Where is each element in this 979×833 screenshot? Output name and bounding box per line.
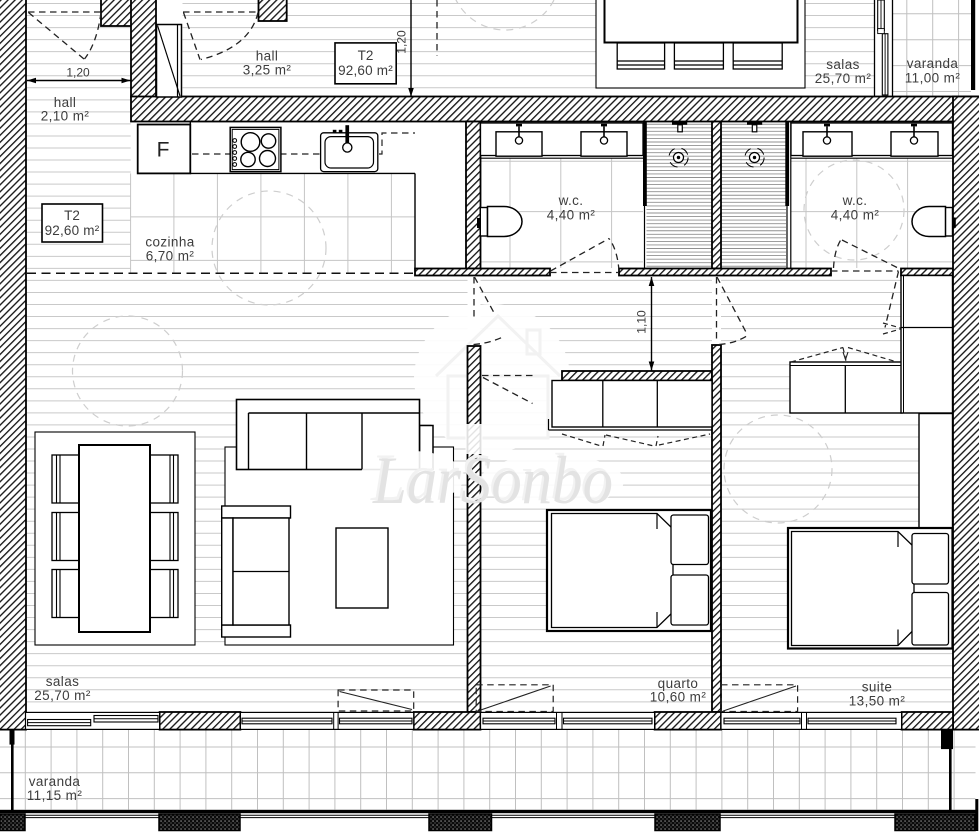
svg-text:varanda: varanda — [907, 56, 959, 71]
svg-text:10,60 m²: 10,60 m² — [650, 690, 707, 705]
svg-text:salas: salas — [46, 674, 80, 689]
svg-text:LarSonbo: LarSonbo — [372, 442, 613, 518]
svg-text:w.c.: w.c. — [842, 193, 868, 208]
svg-text:4,40 m²: 4,40 m² — [547, 208, 596, 223]
svg-text:92,60 m²: 92,60 m² — [338, 63, 393, 78]
svg-text:25,70 m²: 25,70 m² — [34, 688, 91, 703]
svg-text:cozinha: cozinha — [145, 235, 194, 250]
svg-text:T2: T2 — [358, 48, 374, 63]
svg-text:25,70 m²: 25,70 m² — [815, 71, 872, 86]
svg-text:1,10: 1,10 — [635, 310, 649, 334]
svg-text:92,60 m²: 92,60 m² — [45, 223, 100, 238]
svg-text:T2: T2 — [64, 208, 80, 223]
svg-text:w.c.: w.c. — [558, 193, 584, 208]
svg-text:hall: hall — [256, 49, 279, 64]
svg-text:3,25 m²: 3,25 m² — [243, 63, 292, 78]
svg-text:13,50 m²: 13,50 m² — [849, 694, 906, 709]
svg-text:salas: salas — [826, 57, 860, 72]
svg-text:F: F — [157, 139, 170, 162]
svg-text:4,40 m²: 4,40 m² — [831, 208, 880, 223]
svg-text:2,10 m²: 2,10 m² — [41, 109, 90, 124]
svg-text:11,15 m²: 11,15 m² — [27, 788, 83, 803]
svg-text:1,20: 1,20 — [66, 66, 90, 80]
svg-text:varanda: varanda — [29, 774, 81, 789]
svg-text:11,00 m²: 11,00 m² — [905, 71, 961, 86]
svg-text:suite: suite — [862, 680, 893, 695]
svg-text:6,70 m²: 6,70 m² — [146, 249, 195, 264]
